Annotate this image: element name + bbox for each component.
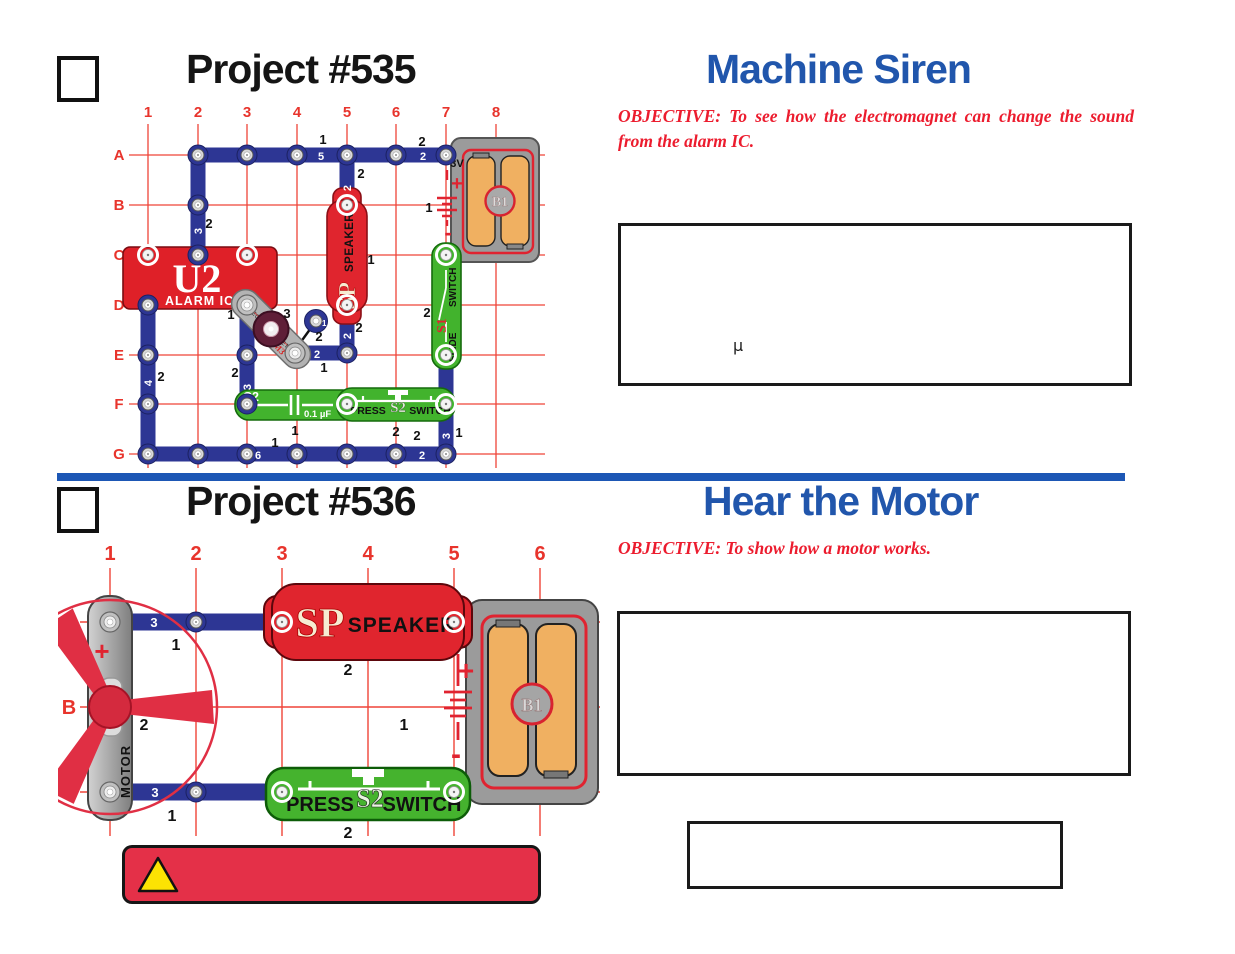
snap-connector [138, 394, 158, 414]
wire-num: 3 [193, 228, 205, 234]
layer-num: 2 [344, 825, 353, 840]
grid-column-label: 5 [448, 543, 459, 565]
layer-num: 2 [157, 369, 164, 384]
wire-num: 3 [151, 785, 158, 800]
layer-num: 2 [357, 166, 364, 181]
project-number-535: Project #535 [186, 46, 416, 93]
wire-num: 3 [441, 433, 453, 439]
objective-535: OBJECTIVE: To see how the electromagnet … [618, 104, 1134, 155]
layer-num: 2 [205, 216, 212, 231]
snap-connector [436, 444, 456, 464]
c2-value: 0.1 µF [304, 409, 331, 420]
snap-connector [138, 345, 158, 365]
s1-label: S1 [435, 318, 450, 333]
warning-triangle-icon [137, 855, 181, 895]
layer-num: 1 [291, 423, 298, 438]
snap-connector [188, 195, 208, 215]
b1-plus: + [458, 655, 474, 686]
snap-connector [337, 343, 357, 363]
wire-num: 2 [419, 450, 425, 462]
objective-536: OBJECTIVE: To show how a motor works. [618, 536, 1134, 561]
snap-connector [186, 612, 206, 632]
layer-num: 1 [168, 808, 177, 825]
snap-connector [138, 444, 158, 464]
wire-num: 5 [318, 151, 324, 163]
wire-num: 2 [314, 349, 320, 361]
wire-num: 2 [420, 151, 426, 163]
button-glyph [388, 390, 408, 395]
grid-column-label: 4 [293, 104, 302, 121]
snap-connector [287, 444, 307, 464]
layer-num: 1 [455, 425, 462, 440]
fan-hub [89, 686, 131, 728]
mu-symbol: µ [733, 336, 743, 355]
button-glyph [352, 769, 384, 777]
grid-column-label: 7 [442, 104, 450, 121]
layer-num: 1 [172, 637, 181, 654]
grid-row-label: G [113, 446, 125, 463]
snap-connector [100, 782, 120, 802]
snap-connector [188, 444, 208, 464]
wire-num: 2 [342, 185, 354, 191]
snap-connector [186, 782, 206, 802]
grid-column-label: 3 [243, 104, 251, 121]
layer-num: 2 [418, 134, 425, 149]
snap-connector [237, 345, 257, 365]
layer-num: 1 [400, 717, 409, 734]
press-switch-s2: PRESS S2 SWITCH [266, 768, 470, 820]
snap-connector [237, 394, 257, 414]
wire-num: 3 [242, 384, 254, 390]
grid-row-label: E [114, 347, 124, 364]
grid-column-label: 5 [343, 104, 351, 121]
snap-connector [337, 444, 357, 464]
b1-plus: + [451, 173, 463, 195]
notes-box-535: µ [618, 223, 1132, 386]
project-number-536: Project #536 [186, 478, 416, 525]
u2-name: ALARM IC [165, 294, 234, 308]
grid-column-label: 4 [362, 543, 374, 565]
wire-num: 2 [342, 333, 354, 339]
sp-name: SPEAKER [348, 614, 457, 637]
fan-blade [124, 690, 214, 724]
grid-column-label: 6 [392, 104, 400, 121]
grid-row-label: A [114, 147, 125, 164]
grid-column-label: 3 [276, 543, 287, 565]
b1-label: B1 [492, 195, 508, 210]
s2-switch: SWITCH [383, 794, 462, 816]
layer-num: 2 [423, 305, 430, 320]
grid-row-label: B [114, 197, 125, 214]
circuit-diagram-535: 1 2 3 4 5 6 7 8 A B C D E F G [105, 100, 550, 472]
snap-connector [386, 444, 406, 464]
todo-checkbox-535[interactable] [57, 56, 99, 102]
speaker-sp: SP SPEAKER [264, 584, 472, 660]
layer-num: 1 [367, 252, 374, 267]
grid-column-label: 6 [534, 543, 545, 565]
snap-connector [436, 145, 456, 165]
b1-minus: - [451, 738, 461, 771]
layer-num: 1 [319, 132, 326, 147]
grid-column-label: 8 [492, 104, 500, 121]
notes-box-536 [617, 611, 1131, 776]
grid-column-label: 2 [190, 543, 201, 565]
snap-connector [237, 145, 257, 165]
grid-column-label: 2 [194, 104, 202, 121]
b1-label: B1 [521, 695, 542, 715]
s2-label: S2 [356, 784, 383, 813]
layer-num: 1 [227, 307, 234, 322]
grid-column-label: 1 [144, 104, 152, 121]
layer-num: 1 [320, 360, 327, 375]
grid-row-label: F [114, 396, 123, 413]
s1-switch: SWITCH [448, 268, 459, 307]
sp-name: SPEAKER [344, 213, 356, 272]
wire-num: 4 [143, 379, 155, 386]
snap-connector [386, 145, 406, 165]
snap-connector [100, 612, 120, 632]
snap-connector [337, 145, 357, 165]
s2-press: PRESS [286, 794, 354, 816]
snap-connector [188, 245, 208, 265]
snap-connector [138, 295, 158, 315]
snap-connector [287, 145, 307, 165]
circuit-diagram-536: 1 2 3 4 5 6 B B1 3V + - [58, 540, 603, 840]
project-title-536: Hear the Motor [703, 478, 978, 525]
warning-banner [122, 845, 541, 904]
layer-num: 2 [140, 717, 149, 734]
layer-num: 1 [425, 200, 432, 215]
b1-minus: - [444, 220, 451, 245]
manual-page: Project #535 Machine Siren OBJECTIVE: To… [0, 0, 1235, 954]
sp-label: SP [295, 601, 344, 647]
wire-num: 3 [150, 615, 157, 630]
project-title-535: Machine Siren [706, 46, 971, 93]
layer-num: 1 [271, 435, 278, 450]
layer-num: 2 [392, 424, 399, 439]
answer-box-536 [687, 821, 1063, 889]
snap-connector [188, 145, 208, 165]
one-snap-num: 1 [322, 319, 327, 328]
grid-column-label: 1 [104, 543, 115, 565]
layer-num: 2 [413, 428, 420, 443]
wire-num: 6 [255, 450, 261, 462]
layer-num: 2 [315, 329, 322, 344]
s2-label: S2 [390, 400, 406, 416]
grid-row-label: B [62, 697, 76, 719]
layer-num: 3 [283, 306, 290, 321]
motor-plus: + [94, 636, 109, 666]
layer-num: 2 [231, 365, 238, 380]
todo-checkbox-536[interactable] [57, 487, 99, 533]
layer-num: 2 [344, 662, 353, 679]
layer-num: 2 [355, 320, 362, 335]
